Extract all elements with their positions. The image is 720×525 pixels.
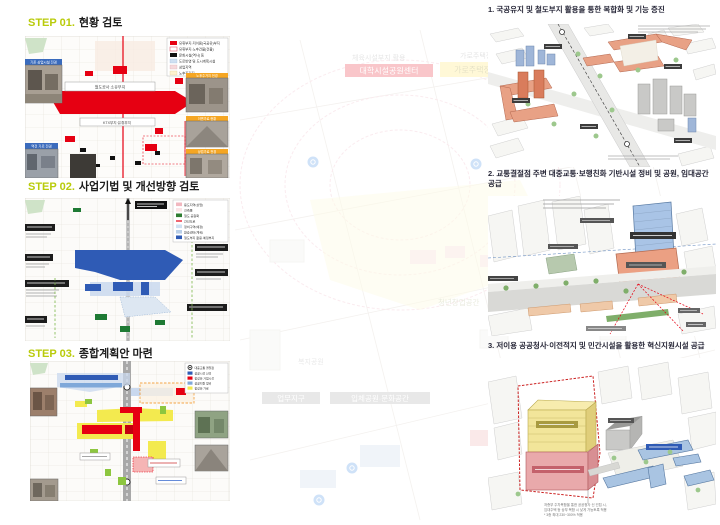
section2-heading: 2. 교통결절점 주변 대중교통·보행친화 기반시설 정비 및 공원, 임대공간… — [488, 169, 716, 189]
diagram3-caption-line3: * 3종 최대 230~300% 적용 — [544, 512, 583, 517]
section1-heading: 1. 국공유지 및 철도부지 활용을 통한 복합화 및 기능 증진 — [488, 5, 716, 15]
map-step2-improvement: 용도지역(상업) 건축물 철도 공원화 간선도로 정비구역(예정) 환승센터(계… — [25, 198, 230, 341]
map3-legend-label-4: 공공지원 정비 — [195, 381, 212, 386]
map2-legend-label-3: 철도 공원화 — [184, 213, 199, 218]
step1-number: STEP 01. — [28, 17, 75, 29]
map3-legend: 대중교통 결절점 공공시설 신설 활성화 거점시설 공공지원 정비 활성화 가로 — [185, 363, 228, 393]
diagram2-park — [546, 244, 578, 274]
map1-photo-left-bottom-caption: 역전 가로 전경 — [31, 144, 52, 149]
step3-number: STEP 03. — [28, 348, 75, 360]
step2-number: STEP 02. — [28, 181, 75, 193]
map3-photo-left-bottom — [30, 479, 58, 501]
step1-title: 현황 검토 — [79, 17, 123, 29]
map2-legend-label-5: 정비구역(예정) — [184, 224, 203, 229]
map1-legend-label-1: 유휴부지·저이용(국공유)부지 — [179, 41, 220, 46]
watermark-park-text: 입체공원·문화공간 — [351, 393, 409, 403]
map3-legend-label-2: 공공시설 신설 — [195, 371, 212, 376]
map1-legend-label-2: 유휴부지·노후건물(건물) — [179, 47, 214, 52]
map1-photo-left-bottom: 역전 가로 전경 — [25, 143, 58, 178]
map1-legend-label-4: 도로반영 및 도시계획시설 — [179, 59, 215, 64]
diagram3-caption-line2: 임대주택 등 상부 복합 시 낮게 가능토록 적용 — [544, 507, 607, 512]
map1-legend: 유휴부지·저이용(국공유)부지 유휴부지·노후건물(건물) 문화시설(역사) 등… — [167, 38, 228, 76]
map-step1-status: 철도공사 소유부지 KTX부지·유휴부지 유휴부지·저이용(국공유)부지 유휴부… — [25, 36, 230, 178]
step3-heading: STEP 03.종합계획안 마련 — [28, 345, 153, 361]
watermark-district-text: 업무지구 — [277, 394, 305, 403]
diagram3-innovation-facility: 저층부 주차복합을 통한 공공청사 신 건립 시, 임대주택 등 상부 복합 시… — [488, 358, 716, 520]
map2-legend-label-2: 건축물 — [184, 207, 193, 212]
poster-canvas: 체육시설부지 활용 가로주택정비 대학시설공원센터 가로주택정비 연계거점 업무… — [0, 0, 720, 525]
watermark-note-left: 체육시설부지 활용 — [352, 53, 406, 62]
map2-legend: 용도지역(상업) 건축물 철도 공원화 간선도로 정비구역(예정) 환승센터(계… — [173, 200, 228, 242]
map3-legend-label-5: 활성화 가로 — [195, 386, 209, 391]
map3-photo-left-top — [30, 388, 57, 416]
diagram1-station-node-bottom — [625, 142, 630, 147]
step2-title: 사업기법 및 개선방향 검토 — [79, 181, 200, 193]
map2-park — [25, 200, 45, 214]
map1-legend-label-3: 문화시설(역사) 등 — [179, 53, 204, 58]
map2-legend-label-1: 용도지역(상업) — [184, 202, 203, 207]
diagram1-axonometric — [488, 24, 716, 167]
map1-photo-left-top-caption: 기존 상업시설 전경 — [30, 60, 57, 65]
diagram3-caption-line1: 저층부 주차복합을 통한 공공청사 신 건립 시, — [544, 502, 607, 507]
map-step3-masterplan: 대중교통 결절점 공공시설 신설 활성화 거점시설 공공지원 정비 활성화 가로 — [30, 361, 230, 501]
watermark-youth-text: 청년창업공간 — [438, 297, 479, 307]
map1-photo-right-3-caption: 상업가로 전경 — [198, 149, 217, 154]
map2-legend-label-4: 간선도로 — [184, 218, 196, 223]
map1-legend-label-5: 상업지역 — [179, 65, 191, 70]
diagram1-station-node-top — [560, 30, 565, 35]
map1-photo-left-top: 기존 상업시설 전경 — [25, 59, 62, 103]
map1-photo-right-1-caption: 노후주거지 전경 — [196, 73, 217, 78]
map2-legend-label-6: 환승센터(계획) — [184, 229, 203, 234]
diagram3-yellow-block — [528, 400, 596, 452]
map1-photo-right-2-caption: 이면가로 현황 — [198, 116, 217, 121]
watermark-red-label-text: 대학시설공원센터 — [360, 66, 419, 76]
map1-photos-right: 노후주거지 전경 이면가로 현황 상업가로 전경 — [186, 73, 228, 178]
step3-title: 종합계획안 마련 — [79, 348, 153, 360]
section3-heading: 3. 저이용 공공청사·이전적지 및 민간시설을 활용한 혁신지원시설 공급 — [488, 341, 716, 351]
map1-site-bottom-label: KTX부지·유휴부지 — [103, 120, 131, 125]
step2-heading: STEP 02.사업기법 및 개선방향 검토 — [28, 178, 199, 194]
diagram1-blue-tower-right — [688, 118, 696, 132]
map2-legend-label-7: 철도부지 활용·예정부지 — [184, 235, 215, 240]
map3-legend-label-1: 대중교통 결절점 — [195, 365, 215, 370]
watermark-welfare-text: 복지공원 — [298, 357, 324, 366]
map1-site-top-label: 철도공사 소유부지 — [95, 84, 126, 90]
diagram2-transit-node — [488, 196, 716, 336]
map1-station-band — [53, 91, 193, 114]
step1-heading: STEP 01.현황 검토 — [28, 14, 122, 30]
map3-legend-label-3: 활성화 거점시설 — [195, 376, 215, 381]
